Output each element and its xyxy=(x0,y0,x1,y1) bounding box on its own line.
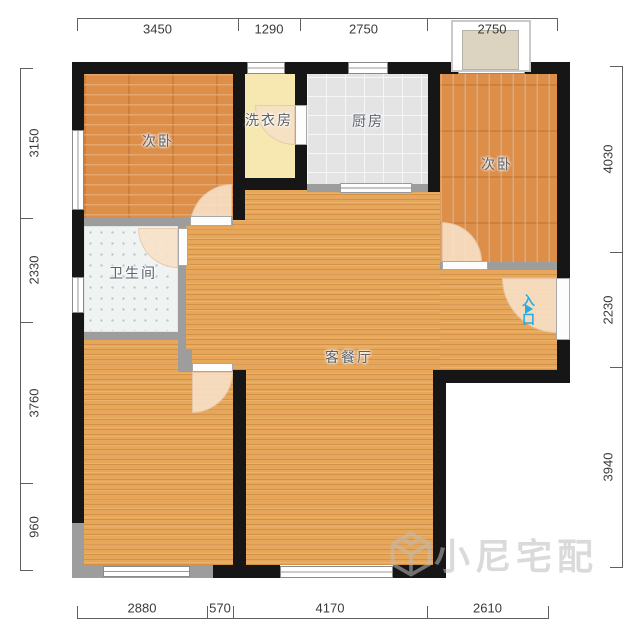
dimension-label-top: 3450 xyxy=(143,22,172,37)
room-bathroom-label: 卫生间 xyxy=(109,263,157,283)
watermark-text: 小尼宅配 xyxy=(434,528,598,580)
floor-plan-canvas: 入口 客餐厅次卧洗衣房厨房次卧卫生间3450129027502750288057… xyxy=(0,0,640,640)
wall-segment xyxy=(233,74,245,220)
window xyxy=(72,277,84,313)
watermark: 小尼宅配 xyxy=(388,528,598,580)
room-bedroom-top-left-label: 次卧 xyxy=(142,131,174,151)
watermark-cube-icon xyxy=(388,531,434,577)
window xyxy=(103,566,190,577)
dimension-tick xyxy=(77,606,78,619)
wall-segment xyxy=(433,370,570,383)
dimension-tick xyxy=(610,66,623,67)
dimension-label-bottom: 4170 xyxy=(316,601,345,616)
thin-wall-segment xyxy=(72,523,84,565)
window xyxy=(348,62,388,74)
dimension-label-bottom: 570 xyxy=(209,601,231,616)
door-panel xyxy=(295,105,307,145)
dimension-tick xyxy=(300,18,301,31)
dimension-tick xyxy=(20,570,33,571)
room-living-dining-label: 客餐厅 xyxy=(325,347,373,367)
dimension-label-right: 3940 xyxy=(601,453,616,482)
dimension-tick xyxy=(548,606,549,619)
room-kitchen-label: 厨房 xyxy=(352,111,384,131)
dimension-label-top: 1290 xyxy=(255,22,284,37)
thin-wall-segment xyxy=(178,350,192,372)
dimension-label-right: 2230 xyxy=(601,295,616,324)
dimension-tick xyxy=(610,252,623,253)
dimension-tick xyxy=(20,322,33,323)
dimension-label-top: 2750 xyxy=(349,22,378,37)
window xyxy=(72,130,84,210)
dimension-tick xyxy=(207,606,208,619)
dimension-label-left: 3760 xyxy=(27,388,42,417)
dimension-tick xyxy=(77,18,78,31)
dimension-tick xyxy=(427,18,428,31)
dimension-tick xyxy=(557,18,558,31)
entrance-label: 入口 xyxy=(522,304,533,314)
dimension-label-bottom: 2610 xyxy=(473,601,502,616)
dimension-tick xyxy=(233,606,234,619)
dimension-line-left xyxy=(20,68,21,570)
window xyxy=(247,62,285,74)
thin-wall-segment xyxy=(84,332,178,340)
wall-segment xyxy=(233,178,307,190)
door-panel xyxy=(190,216,232,226)
wall-segment xyxy=(213,565,280,578)
dimension-label-bottom: 2880 xyxy=(128,601,157,616)
sliding-door xyxy=(340,183,412,193)
dimension-tick xyxy=(427,606,428,619)
door-panel xyxy=(556,278,570,340)
dimension-tick xyxy=(610,367,623,368)
window xyxy=(280,566,393,578)
dimension-label-left: 3150 xyxy=(27,129,42,158)
dimension-line-right xyxy=(622,66,623,567)
dimension-tick xyxy=(20,218,33,219)
room-kitchen-floor xyxy=(307,74,428,192)
door-panel xyxy=(178,228,188,266)
dimension-tick xyxy=(20,68,33,69)
dimension-label-right: 4030 xyxy=(601,145,616,174)
dimension-tick xyxy=(610,567,623,568)
dimension-label-top: 2750 xyxy=(478,22,507,37)
dimension-label-left: 960 xyxy=(27,516,42,538)
wall-segment xyxy=(233,370,246,578)
dimension-line-bottom xyxy=(77,618,548,619)
room-laundry-label: 洗衣房 xyxy=(245,110,293,130)
door-panel xyxy=(442,261,488,270)
dimension-line-top xyxy=(77,18,557,19)
dimension-tick xyxy=(238,18,239,31)
dimension-tick xyxy=(20,483,33,484)
door-panel xyxy=(192,363,233,372)
dimension-label-left: 2330 xyxy=(27,256,42,285)
entrance-text: 入口 xyxy=(522,290,536,328)
wall-segment xyxy=(428,74,440,192)
room-bedroom-top-right-label: 次卧 xyxy=(481,154,513,174)
